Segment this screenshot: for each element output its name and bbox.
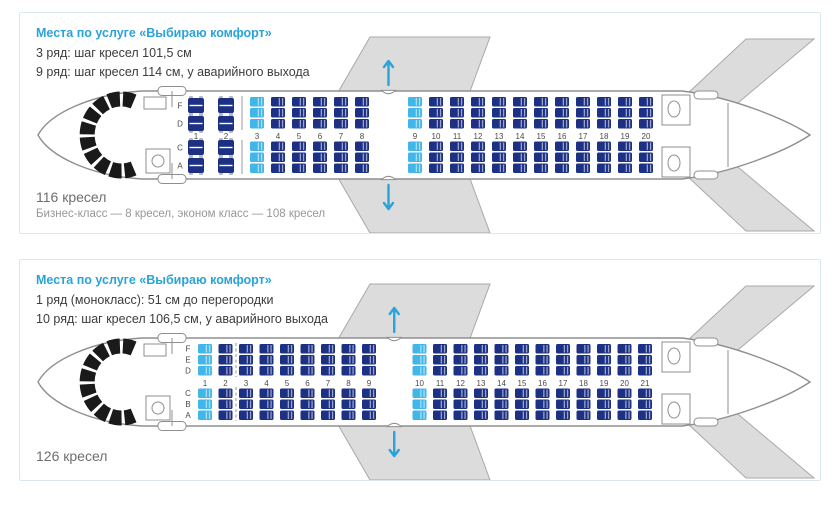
rear-door-icon [694,91,718,99]
seat-detail [423,390,424,398]
seat-detail [324,109,325,117]
rear-door-icon [694,171,718,179]
seat-detail [542,154,543,162]
seat-detail [521,154,522,162]
seat-detail [479,98,480,106]
seat-detail [629,154,630,162]
seat-detail [311,356,312,364]
seat-detail [650,120,651,128]
row-number: 20 [620,379,629,388]
seat-detail [523,390,524,398]
seat-letter: C [185,389,191,398]
seat-detail [608,143,609,151]
seat-detail [500,109,501,117]
seat-detail [649,345,650,353]
seat-detail [282,165,283,173]
seat-detail [258,165,259,173]
seat-detail [502,401,503,409]
seat-letter: D [185,367,191,376]
row-number: 1 [194,132,199,141]
row-number: 2 [223,379,228,388]
seat-detail [647,165,648,173]
seat-detail [566,165,567,173]
seat-detail [626,143,627,151]
seat-detail [373,401,374,409]
seat-detail [437,109,438,117]
seat-detail [458,109,459,117]
scheme-note-2: 9 ряд: шаг кресел 114 см, у аварийного в… [36,63,310,82]
row-number: 9 [413,132,418,141]
rear-door-icon [694,418,718,426]
seat-detail [485,412,486,420]
seat-detail [542,98,543,106]
seat-detail [440,165,441,173]
seat-detail [545,109,546,117]
seat-detail [370,367,371,375]
seat-detail [505,356,506,364]
seat-detail [461,412,462,420]
seat-detail [584,154,585,162]
seat-detail [261,120,262,128]
seat-detail [321,154,322,162]
row-number: 11 [453,132,462,141]
seat-detail [441,401,442,409]
seat-detail [482,367,483,375]
seat-detail [300,143,301,151]
row-number: 17 [579,132,588,141]
seat-detail [567,345,568,353]
seat-detail [308,367,309,375]
seat-detail [321,120,322,128]
row-number: 12 [456,379,465,388]
seat-detail [329,367,330,375]
seat-detail [542,120,543,128]
seat-detail [546,412,547,420]
seat-detail [258,98,259,106]
seat-detail [363,154,364,162]
seat-detail [282,120,283,128]
seat-detail [461,367,462,375]
seat-detail [608,109,609,117]
seat-detail [567,401,568,409]
seat-detail [247,367,248,375]
seat-detail [370,390,371,398]
seat-detail [584,401,585,409]
seat-detail [464,401,465,409]
seat-letter: A [177,161,183,170]
seat-detail [458,154,459,162]
seat-detail [441,356,442,364]
seat-detail [567,356,568,364]
seat-detail [229,356,230,364]
seat-detail [220,123,233,124]
seat-detail [546,345,547,353]
seat-detail [270,367,271,375]
seat-detail [311,401,312,409]
seat-detail [444,345,445,353]
seat-detail [526,390,527,398]
seat-detail [261,154,262,162]
seat-detail [270,345,271,353]
seat-detail [444,367,445,375]
seat-detail [288,401,289,409]
seat-detail [441,367,442,375]
seat-detail [564,390,565,398]
seat-detail [303,109,304,117]
seat-detail [303,120,304,128]
seat-detail [605,98,606,106]
seat-detail [523,412,524,420]
seat-detail [485,401,486,409]
seat-detail [626,98,627,106]
seat-detail [270,412,271,420]
seat-detail [370,356,371,364]
seat-detail [521,98,522,106]
seat-detail [524,154,525,162]
seat-detail [247,412,248,420]
seat-detail [646,412,647,420]
seat-detail [461,143,462,151]
seat-detail [416,143,417,151]
seat-detail [629,120,630,128]
seat-detail [626,165,627,173]
seat-detail [646,390,647,398]
seat-detail [608,401,609,409]
seat-detail [502,412,503,420]
seat-detail [646,345,647,353]
row-number: 3 [244,379,249,388]
seat-detail [352,412,353,420]
seat-detail [628,345,629,353]
seat-detail [267,390,268,398]
seat-detail [479,109,480,117]
seat-detail [563,109,564,117]
seat-detail [345,154,346,162]
seat-detail [247,356,248,364]
seat-detail [352,345,353,353]
seat-detail [332,390,333,398]
seat-detail [626,120,627,128]
seat-detail [546,401,547,409]
seat-letter: A [185,411,191,420]
seat-detail [521,143,522,151]
seat-detail [288,412,289,420]
seat-total: 126 кресел [36,448,107,464]
seat-detail [584,120,585,128]
row-number: 7 [339,132,344,141]
seat-detail [485,345,486,353]
seat-detail [440,98,441,106]
seat-breakdown: Бизнес-класс — 8 кресел, эконом класс — … [36,208,325,220]
seat-detail [352,390,353,398]
seat-detail [524,143,525,151]
seat-detail [349,367,350,375]
seat-detail [526,401,527,409]
seat-detail [291,345,292,353]
seat-detail [500,143,501,151]
seat-detail [226,401,227,409]
seat-detail [250,390,251,398]
row-number: 14 [497,379,506,388]
seat-detail [482,345,483,353]
scheme-note-1: 3 ряд: шаг кресел 101,5 см [36,44,310,63]
seat-detail [564,401,565,409]
seat-detail [423,345,424,353]
seat-detail [605,120,606,128]
seat-detail [247,401,248,409]
seat-detail [605,412,606,420]
seat-detail [420,356,421,364]
seat-detail [209,345,210,353]
seat-detail [545,98,546,106]
seat-detail [564,412,565,420]
seat-detail [345,98,346,106]
seat-detail [526,345,527,353]
seat-detail [209,412,210,420]
seat-detail [461,165,462,173]
seat-letter: F [186,345,191,354]
seat-detail [220,105,233,106]
seat-detail [437,165,438,173]
seat-detail [440,120,441,128]
seat-detail [329,390,330,398]
seat-detail [226,345,227,353]
lavatory-icon [662,394,690,424]
seat-detail [226,367,227,375]
seat-detail [258,109,259,117]
seat-detail [419,143,420,151]
seat-detail [584,109,585,117]
seat-detail [349,345,350,353]
seat-detail [209,356,210,364]
seat-detail [366,109,367,117]
seat-detail [349,356,350,364]
seat-detail [332,345,333,353]
seat-detail [543,401,544,409]
seat-detail [502,390,503,398]
seat-detail [626,154,627,162]
row-number: 4 [264,379,269,388]
seat-detail [523,345,524,353]
row-number: 18 [579,379,588,388]
seat-detail [270,356,271,364]
seat-detail [437,143,438,151]
seat-detail [625,367,626,375]
seat-detail [545,165,546,173]
seat-detail [505,412,506,420]
seat-detail [258,120,259,128]
seat-detail [546,356,547,364]
seat-detail [288,356,289,364]
lavatory-icon [662,147,690,177]
row-number: 17 [559,379,568,388]
seat-detail [587,109,588,117]
seat-detail [416,165,417,173]
seat-detail [482,120,483,128]
seat-total: 116 кресел [36,189,325,205]
row-number: 21 [641,379,650,388]
seat-detail [524,165,525,173]
seat-detail [584,143,585,151]
seat-detail [352,367,353,375]
seat-detail [282,143,283,151]
seat-detail [524,98,525,106]
seat-detail [352,401,353,409]
seat-detail [190,147,203,148]
seat-detail [625,356,626,364]
seat-detail [650,143,651,151]
seat-detail [503,120,504,128]
seat-detail [303,98,304,106]
seat-detail [229,412,230,420]
seat-detail [587,154,588,162]
seat-detail [420,367,421,375]
seat-detail [485,356,486,364]
seat-detail [250,401,251,409]
seat-detail [329,356,330,364]
seat-detail [373,390,374,398]
seat-detail [267,367,268,375]
seat-detail [564,356,565,364]
seat-detail [503,98,504,106]
seat-detail [608,120,609,128]
seat-detail [444,356,445,364]
lavatory-icon [662,342,690,372]
seat-detail [226,412,227,420]
seat-detail [482,165,483,173]
seat-detail [352,356,353,364]
seat-detail [625,390,626,398]
seat-detail [349,412,350,420]
seat-detail [267,401,268,409]
seat-detail [324,98,325,106]
seat-detail [584,390,585,398]
row-number: 8 [360,132,365,141]
seat-detail [300,109,301,117]
seat-detail [366,98,367,106]
seat-detail [524,109,525,117]
row-number: 10 [415,379,424,388]
seat-detail [502,367,503,375]
seat-letter: C [177,143,183,152]
seat-detail [526,412,527,420]
seat-detail [500,98,501,106]
seat-detail [587,356,588,364]
seat-detail [229,401,230,409]
seat-detail [625,412,626,420]
seat-letter: B [185,400,190,409]
row-number: 16 [558,132,567,141]
seat-detail [291,390,292,398]
seat-detail [482,401,483,409]
seat-detail [584,345,585,353]
seat-detail [308,345,309,353]
seat-detail [485,367,486,375]
seat-detail [464,367,465,375]
row-number: 10 [432,132,441,141]
seat-detail [444,401,445,409]
seat-detail [416,98,417,106]
seat-detail [629,165,630,173]
seat-detail [458,143,459,151]
row-number: 11 [436,379,445,388]
seat-detail [521,120,522,128]
row-number: 12 [474,132,483,141]
row-number: 1 [203,379,208,388]
seat-detail [311,367,312,375]
seat-detail [220,165,233,166]
seat-detail [437,154,438,162]
seat-detail [646,401,647,409]
seat-detail [300,98,301,106]
row-number: 19 [600,379,609,388]
seat-detail [546,390,547,398]
seat-detail [329,345,330,353]
scheme-header: Места по услуге «Выбираю комфорт» 3 ряд:… [36,26,310,82]
row-number: 15 [537,132,546,141]
seat-detail [543,356,544,364]
seat-detail [567,367,568,375]
seat-detail [479,165,480,173]
seat-detail [303,143,304,151]
seat-detail [485,390,486,398]
seat-detail [440,143,441,151]
row-number: 20 [642,132,651,141]
seat-detail [628,412,629,420]
seat-detail [523,401,524,409]
seat-detail [366,143,367,151]
seat-detail [564,345,565,353]
seat-detail [226,390,227,398]
row-number: 6 [318,132,323,141]
seat-detail [420,401,421,409]
seat-detail [584,98,585,106]
seat-detail [543,412,544,420]
seat-detail [332,401,333,409]
seat-letter: D [177,119,183,128]
seat-detail [526,356,527,364]
seat-detail [605,154,606,162]
seat-detail [261,165,262,173]
seat-detail [461,401,462,409]
seat-detail [366,165,367,173]
seat-detail [605,367,606,375]
seat-detail [605,390,606,398]
row-number: 3 [255,132,260,141]
seat-detail [229,390,230,398]
seat-detail [563,154,564,162]
seat-detail [342,109,343,117]
seat-detail [441,345,442,353]
seat-detail [321,109,322,117]
seat-detail [461,154,462,162]
seat-detail [329,401,330,409]
seat-detail [342,143,343,151]
seat-detail [308,390,309,398]
seat-detail [482,412,483,420]
seat-detail [587,345,588,353]
lavatory-icon [662,95,690,125]
seat-detail [482,98,483,106]
scheme-title: Места по услуге «Выбираю комфорт» [36,26,310,40]
seat-detail [628,356,629,364]
seat-detail [503,109,504,117]
seat-detail [437,120,438,128]
seat-detail [332,367,333,375]
seat-detail [647,120,648,128]
seat-detail [625,345,626,353]
seat-detail [464,412,465,420]
